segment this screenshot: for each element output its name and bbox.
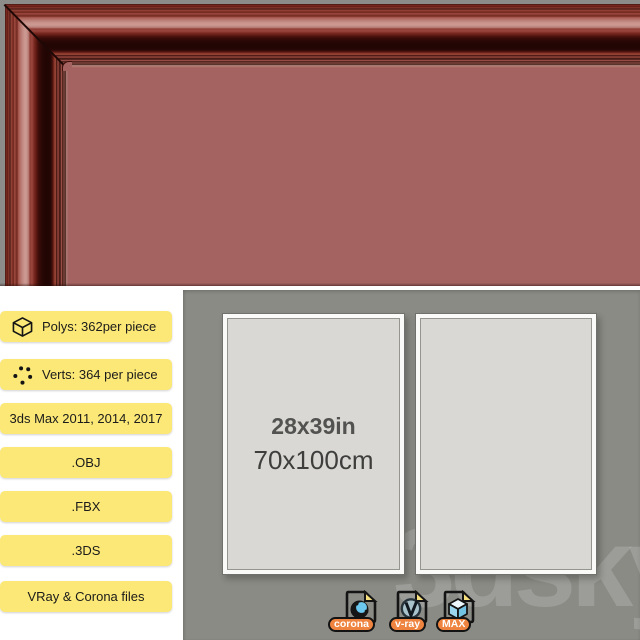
poster-canvas: 28x39in 70x100cm bbox=[227, 318, 400, 570]
frame-corner-render bbox=[0, 0, 640, 286]
poster-size-inches: 28x39in bbox=[271, 413, 355, 440]
spec-badge-obj: .OBJ bbox=[0, 447, 172, 478]
corona-format-badge: corona bbox=[328, 590, 380, 635]
spec-badge-fbx: .FBX bbox=[0, 491, 172, 522]
corona-label: corona bbox=[328, 617, 375, 632]
spec-label: Verts: 364 per piece bbox=[42, 367, 158, 382]
render-bottom-shadow bbox=[0, 283, 640, 286]
poster-size-cm: 70x100cm bbox=[254, 445, 374, 476]
frame-inner-corner bbox=[62, 61, 72, 71]
poster-canvas bbox=[420, 318, 592, 570]
spec-label: VRay & Corona files bbox=[27, 589, 144, 604]
verts-dots-icon bbox=[12, 364, 33, 386]
max-format-badge: MAX bbox=[436, 590, 488, 635]
spec-badge-3ds: .3DS bbox=[0, 535, 172, 566]
spec-label: .FBX bbox=[72, 499, 101, 514]
spec-badge-polys: Polys: 362per piece bbox=[0, 311, 172, 342]
spec-label: .3DS bbox=[72, 543, 101, 558]
preview-panel: 3dsky 28x39in 70x100cm cor bbox=[183, 290, 640, 640]
spec-label: .OBJ bbox=[72, 455, 101, 470]
product-card: Polys: 362per piece Verts: 364 per piece… bbox=[0, 0, 640, 640]
max-label: MAX bbox=[436, 617, 471, 632]
vray-label: v-ray bbox=[389, 617, 426, 632]
spec-badge-verts: Verts: 364 per piece bbox=[0, 359, 172, 390]
poster-frame-left: 28x39in 70x100cm bbox=[222, 313, 405, 575]
spec-label: 3ds Max 2011, 2014, 2017 bbox=[10, 411, 163, 426]
cube-icon bbox=[12, 316, 33, 338]
poster-frame-right bbox=[415, 313, 597, 575]
vray-format-badge: v-ray bbox=[389, 590, 441, 635]
spec-badge-max-versions: 3ds Max 2011, 2014, 2017 bbox=[0, 403, 172, 434]
spec-badge-renderers: VRay & Corona files bbox=[0, 581, 172, 612]
spec-label: Polys: 362per piece bbox=[42, 319, 156, 334]
frame-molding-top bbox=[5, 4, 640, 68]
